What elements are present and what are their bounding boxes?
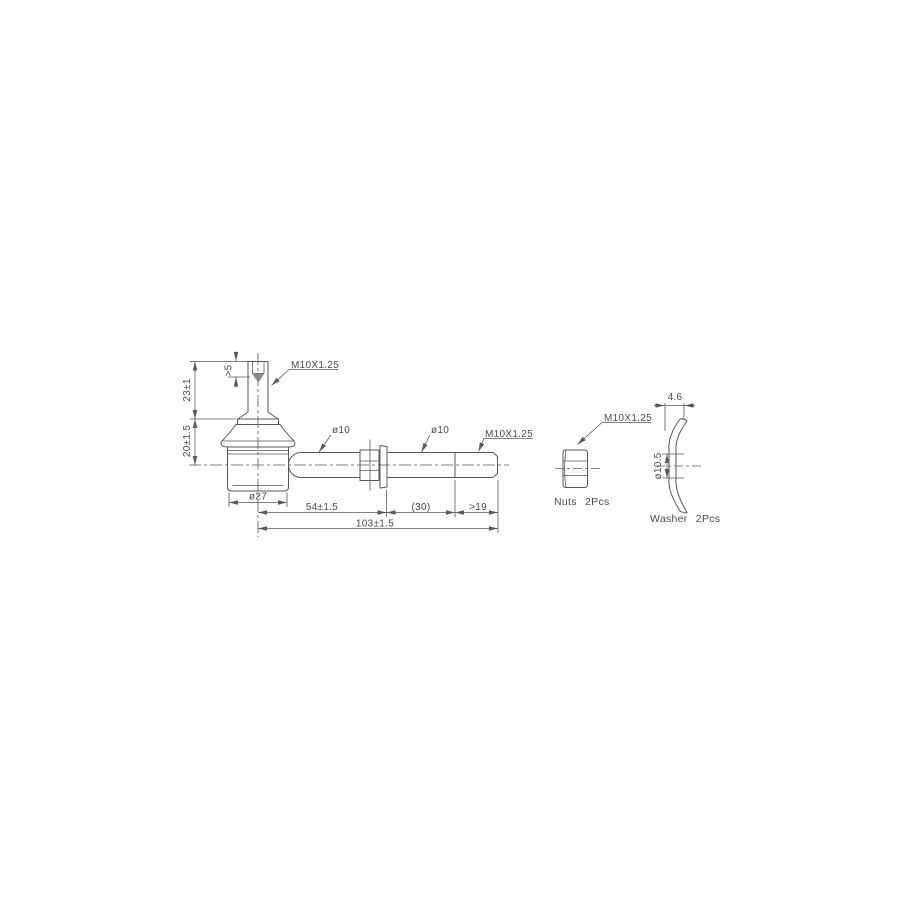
rod-end-thread-label: M10X1.25	[485, 429, 533, 440]
washer-caption: Washer 2Pcs	[650, 513, 720, 525]
dim-stud-height: 23±1	[182, 378, 193, 402]
rod-dia-label-left: ø10	[332, 425, 350, 436]
link-rod-outline	[289, 446, 498, 489]
stabilizer-link-view: >5 23±1 20±1.5 M10X1.25 ø27 ø10 ø10	[182, 352, 533, 538]
dim-stud-tip: >5	[224, 364, 235, 376]
washer-thickness: 4.6	[668, 392, 683, 403]
dim-housing-dia: ø27	[249, 492, 267, 503]
nut-view: M10X1.25 Nuts 2Pcs	[554, 413, 652, 508]
nut-thread-label: M10X1.25	[604, 413, 652, 424]
thread-chamfer-shading	[253, 374, 265, 383]
dust-boot-right	[280, 425, 295, 448]
washer-view: ø10.5 4.6 Washer 2Pcs	[650, 392, 720, 525]
dimension-annotations: >5 23±1 20±1.5 M10X1.25 ø27 ø10 ø10	[182, 352, 533, 534]
dim-socket-height: 20±1.5	[182, 425, 193, 457]
dim-thread-length: >19	[469, 502, 487, 513]
dim-overall-length: 103±1.5	[356, 519, 394, 530]
flange-washer-outline	[380, 446, 387, 489]
dust-boot-left	[221, 425, 236, 448]
technical-drawing-page: >5 23±1 20±1.5 M10X1.25 ø27 ø10 ø10	[0, 0, 900, 900]
rod-dia-label-right: ø10	[431, 425, 449, 436]
dim-mid-section: (30)	[412, 502, 431, 513]
centerlines	[189, 353, 509, 537]
stud-thread-label: M10X1.25	[291, 360, 339, 371]
washer-hole-dia: ø10.5	[653, 452, 664, 479]
nut-caption: Nuts 2Pcs	[554, 496, 610, 508]
stabilizer-link-drawing: >5 23±1 20±1.5 M10X1.25 ø27 ø10 ø10	[0, 0, 900, 900]
dim-center-to-collar: 54±1.5	[306, 502, 338, 513]
